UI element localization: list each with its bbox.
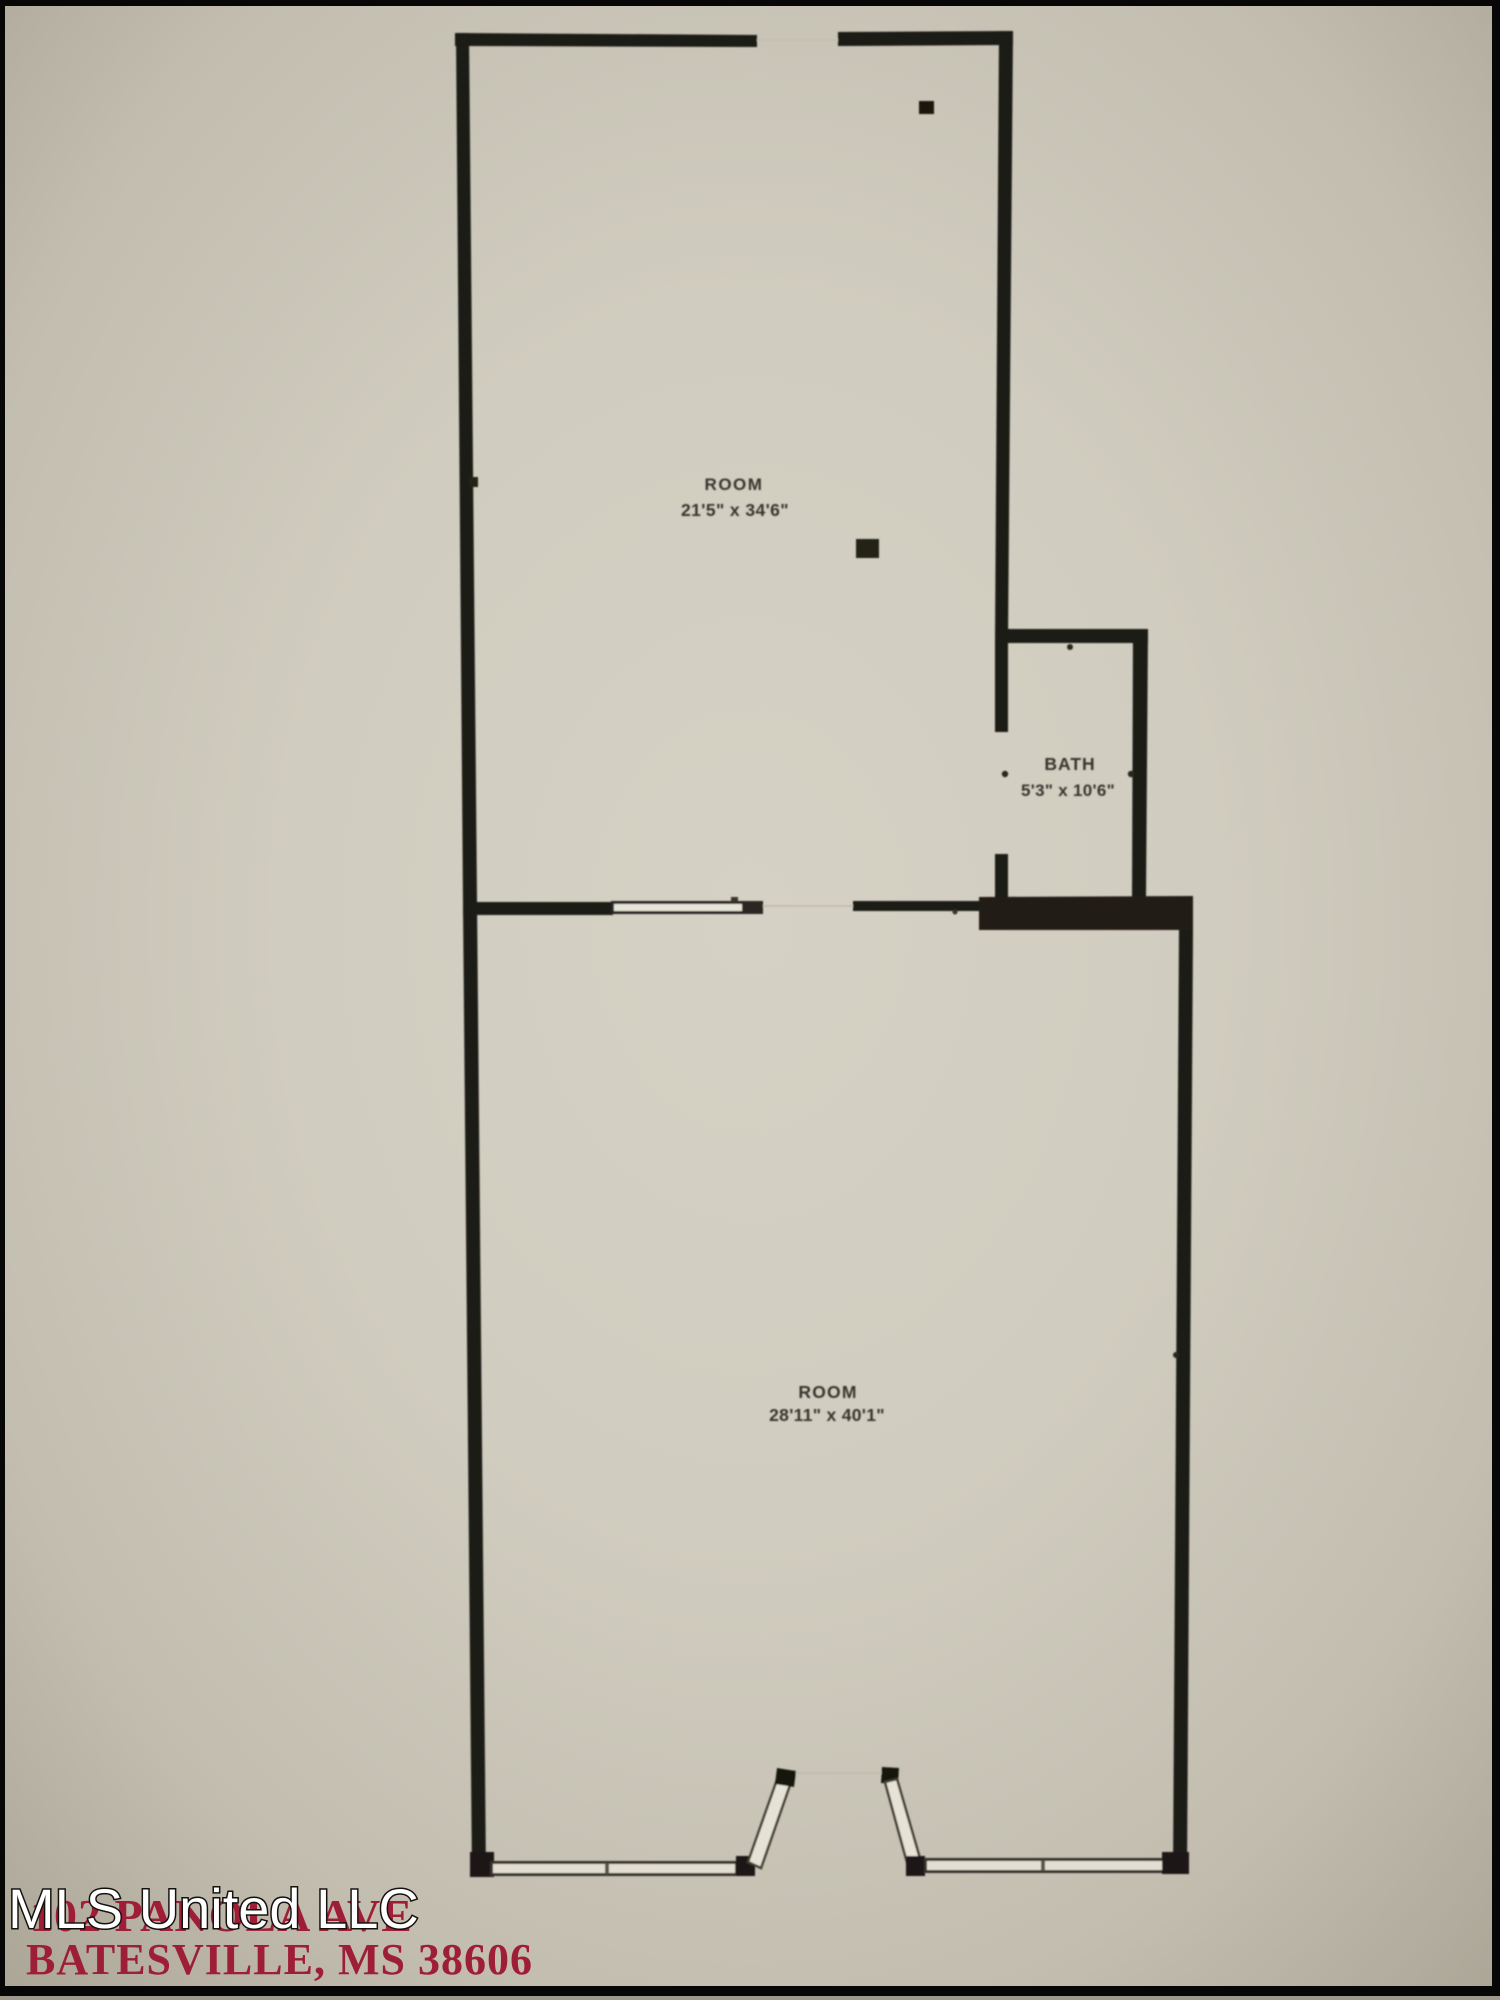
svg-text:ROOM: ROOM bbox=[705, 475, 764, 494]
svg-text:BATH: BATH bbox=[1044, 754, 1095, 774]
svg-text:21'5" x 34'6": 21'5" x 34'6" bbox=[681, 500, 789, 520]
svg-text:28'11" x 40'1": 28'11" x 40'1" bbox=[769, 1405, 885, 1425]
svg-text:BATESVILLE, MS 38606: BATESVILLE, MS 38606 bbox=[26, 1935, 533, 1984]
svg-text:5'3" x 10'6": 5'3" x 10'6" bbox=[1021, 781, 1115, 800]
svg-text:ROOM: ROOM bbox=[798, 1382, 857, 1402]
svg-text:MLS United LLC: MLS United LLC bbox=[8, 1877, 419, 1940]
